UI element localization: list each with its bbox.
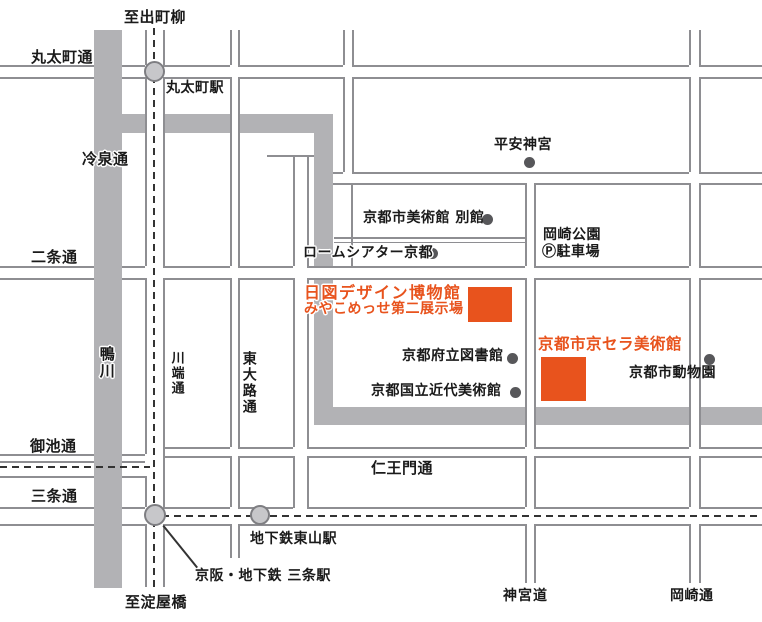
road-edge-line [163,77,165,266]
road-edge-line [163,507,230,509]
road-edge-line [238,524,525,526]
road-edge-line [230,77,232,266]
hizu-museum-marker [468,287,512,322]
road-edge-line [343,30,345,65]
road-edge-line [238,266,293,268]
road-edge-line [145,524,147,587]
road-edge-line [122,476,145,478]
label-higashioji-dori: 東大路通 [241,351,256,415]
road-edge-line [238,278,240,447]
road-edge-line [699,30,701,65]
label-kyoto-city-art-museum-annex: 京都市美術館 別館 [363,211,484,226]
heian-jingu-dot [524,157,535,168]
label-nijo-dori: 二条通 [31,250,78,266]
road-edge-line [163,456,230,458]
marutamachi-station-circle [144,61,165,82]
label-reisen-dori: 冷泉通 [82,152,129,168]
road-edge-line [122,454,145,456]
sanjo-subway-dashed [150,515,762,517]
road-edge-line [699,183,701,266]
road-edge-line [534,266,689,268]
road-edge-line [689,456,691,507]
road-edge-line [230,30,232,65]
road-edge-line [238,77,240,266]
road-edge-line [352,172,689,174]
road-edge-line [307,456,309,508]
road-edge-line [293,456,295,508]
road-edge-line [525,278,527,447]
prefectural-library-dot [507,353,518,364]
road-edge-line [699,524,701,583]
road-edge-line [122,524,145,526]
road-edge-line [699,278,701,447]
road-edge-line [145,278,147,454]
road-edge-line [122,266,145,268]
label-higashiyama-station: 地下鉄東山駅 [250,532,337,547]
road-edge-line [343,77,345,172]
momak-dot [510,387,521,398]
road-edge-line [534,183,689,185]
road-edge-line [333,172,343,174]
road-edge-line [238,456,293,458]
road-edge-line [307,456,525,458]
road-edge-line [689,278,691,447]
road-edge-line [0,278,94,280]
label-okazaki-parking: Ⓟ駐車場 [542,245,600,260]
sanjo-station-pointer-line [163,525,198,568]
label-sanjo-dori: 三条通 [31,489,78,505]
oike-subway-dashed [0,466,150,468]
label-kyocera-museum: 京都市京セラ美術館 [538,336,682,352]
road-edge-line [0,266,94,268]
label-marutamachi-station: 丸太町駅 [166,81,224,96]
label-to-demachiyanagi: 至出町柳 [124,10,186,26]
label-okazaki-park: 岡崎公園 [543,228,601,243]
road-edge-line [352,65,689,67]
label-jingu-michi: 神宮道 [503,589,548,604]
road-edge-line [525,456,527,507]
road-edge-line [122,507,145,509]
road-edge-line [534,524,689,526]
label-okazaki-dori: 岡崎通 [670,589,714,604]
road-edge-line [163,266,230,268]
road-edge-line [699,456,701,507]
label-oike-dori: 御池通 [30,439,77,455]
road-edge-line [122,278,145,280]
road-edge-line [0,77,94,79]
reisen-road-band [165,114,230,133]
label-hizu-design-museum: 日図デザイン博物館 [304,285,462,302]
kyocera-museum-marker [541,357,586,401]
label-momak: 京都国立近代美術館 [371,384,502,399]
road-edge-line [163,77,230,79]
road-edge-line [525,524,527,583]
road-edge-line [699,77,762,79]
road-edge-line [122,65,145,67]
road-edge-line [0,507,94,509]
road-edge-line [163,278,165,507]
road-edge-line [525,183,527,266]
okazaki-loop-road-band [701,407,762,425]
label-niomon-dori: 仁王門通 [371,461,433,477]
road-edge-line [352,30,354,65]
road-edge-line [238,30,240,65]
label-miyakomesse-hall: みやこめっせ第二展示場 [304,302,464,317]
road-edge-line [534,507,689,509]
kamo-river-band [94,30,122,588]
road-edge-line [163,65,230,67]
road-edge-line [334,237,525,239]
label-kawabata-dori: 川端通 [169,351,183,396]
road-edge-line [699,266,762,268]
road-edge-line [699,278,762,280]
road-edge-line [534,456,536,507]
road-edge-line [238,278,293,280]
road-edge-line [230,524,232,558]
kyoto-okazaki-area-map: 至出町柳 丸太町通 丸太町駅 冷泉通 鴨川 二条通 川端通 東大路通 御池通 三… [0,0,762,622]
label-kyoto-zoo: 京都市動物園 [629,366,716,381]
road-edge-line [307,447,525,449]
okazaki-loop-road-band [314,114,333,266]
label-rohm-theatre: ロームシアター京都 [303,246,433,261]
road-edge-line [122,77,145,79]
road-edge-line [163,278,230,280]
road-edge-line [534,183,536,266]
road-edge-line [238,524,240,558]
road-edge-line [230,278,232,447]
road-edge-line [534,278,536,447]
road-edge-line [689,77,691,172]
kyoto-zoo-dot [704,354,715,365]
road-edge-line [699,456,762,458]
road-edge-line [163,524,230,526]
road-edge-line [352,77,689,79]
label-kamogawa: 鴨川 [98,346,114,380]
road-edge-line [145,476,147,507]
road-edge-line [307,278,525,280]
road-edge-line [122,461,145,463]
road-edge-line [0,476,94,478]
road-edge-line [145,77,147,266]
road-edge-line [699,524,762,526]
road-edge-line [163,447,230,449]
road-edge-line [238,456,240,507]
label-prefectural-library: 京都府立図書館 [402,349,504,364]
label-sanjo-station: 京阪・地下鉄 三条駅 [195,569,331,584]
road-edge-line [238,77,343,79]
road-edge-line [163,30,165,65]
road-edge-line [0,524,94,526]
okazaki-loop-road-band [314,407,525,425]
label-to-yodoyabashi: 至淀屋橋 [125,595,187,611]
road-edge-line [534,456,689,458]
road-edge-line [352,77,354,172]
road-edge-line [534,447,689,449]
road-edge-line [238,65,343,67]
label-marutamachi-dori: 丸太町通 [31,50,93,66]
road-edge-line [307,266,525,268]
road-edge-line [689,30,691,65]
road-edge-line [145,30,147,65]
okazaki-loop-road-band [536,407,689,425]
road-edge-line [293,278,295,447]
sanjo-station-circle [144,504,166,526]
road-edge-line [230,456,232,507]
higashiyama-station-circle [250,505,270,525]
road-edge-line [699,172,762,174]
road-edge-line [699,65,762,67]
road-edge-line [689,524,691,583]
reisen-road-band [122,114,145,133]
road-edge-line [699,183,762,185]
road-edge-line [293,155,295,266]
road-edge-line [238,447,293,449]
road-edge-line [534,278,689,280]
road-edge-line [334,242,525,244]
road-edge-line [699,447,762,449]
road-edge-line [333,183,525,185]
road-edge-line [534,524,536,583]
label-heian-jingu: 平安神宮 [494,138,552,153]
road-edge-line [307,507,525,509]
road-edge-line [699,77,701,172]
road-edge-line [0,461,94,463]
road-edge-line [699,507,762,509]
road-edge-line [163,524,165,587]
road-edge-line [689,183,691,266]
